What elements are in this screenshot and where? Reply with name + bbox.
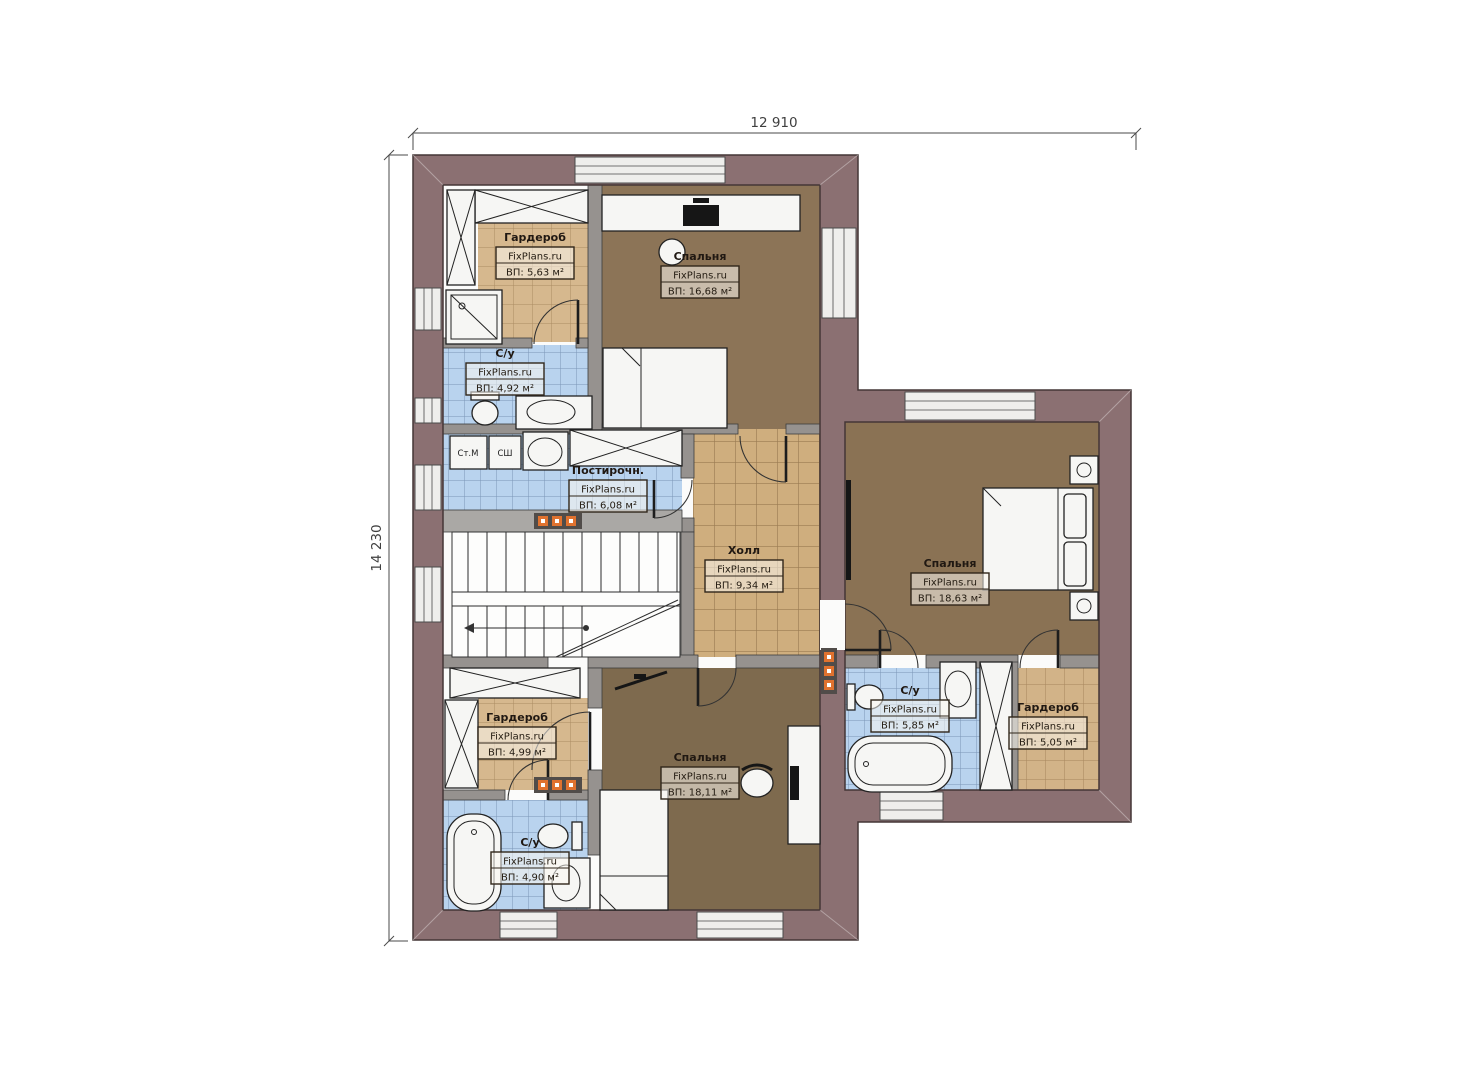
room-label-wardrobe-right: Гардероб FixPlans.ru ВП: 5,05 м² (1009, 701, 1087, 749)
floor-plan-svg: Ст.М СШ (0, 0, 1473, 1080)
window-bottom-1 (500, 912, 557, 938)
room-brand: FixPlans.ru (923, 578, 977, 589)
room-name: С/у (495, 347, 514, 360)
desk (788, 726, 820, 844)
washer-label: Ст.М (458, 449, 479, 459)
floor-plan-page: Ст.М СШ (0, 0, 1473, 1080)
nightstand-bottom (1070, 592, 1098, 620)
bathtub-right (848, 736, 952, 792)
room-area: ВП: 9,34 м² (715, 581, 773, 592)
room-brand: FixPlans.ru (508, 252, 562, 263)
room-brand: FixPlans.ru (490, 732, 544, 743)
laundry-cabinet (570, 430, 682, 466)
bed-top (603, 348, 727, 428)
window-right-main (822, 228, 856, 318)
room-area: ВП: 5,85 м² (881, 721, 939, 732)
dimension-width-label: 12 910 (750, 115, 797, 131)
room-brand: FixPlans.ru (1021, 722, 1075, 733)
hall-wing-door-opening (820, 600, 845, 650)
room-name: С/у (520, 836, 539, 849)
room-label-wardrobe-bottom-left: Гардероб FixPlans.ru ВП: 4,99 м² (478, 711, 556, 759)
room-area: ВП: 18,63 м² (918, 594, 982, 605)
room-name: Холл (728, 544, 760, 557)
room-area: ВП: 4,99 м² (488, 748, 546, 759)
room-name: Постирочн. (572, 464, 644, 477)
tv-wall-right-bedroom (846, 480, 851, 580)
room-name: Гардероб (504, 231, 566, 244)
room-name: Гардероб (1017, 701, 1079, 714)
room-area: ВП: 16,68 м² (668, 287, 732, 298)
window-top (575, 157, 725, 183)
bed-right (983, 488, 1093, 590)
washing-machine: Ст.М (450, 436, 487, 469)
radiator-hall (821, 648, 837, 694)
window-left-2 (415, 398, 441, 423)
nightstand-top (1070, 456, 1098, 484)
window-left-1 (415, 288, 441, 330)
toilet-bottom (538, 822, 582, 850)
room-brand: FixPlans.ru (581, 485, 635, 496)
room-brand: FixPlans.ru (503, 857, 557, 868)
toilet (471, 392, 499, 425)
window-bottom-2 (697, 912, 783, 938)
window-left-3 (415, 465, 441, 510)
drying-cabinet: СШ (489, 436, 521, 469)
radiator-wardrobe-bl (534, 777, 582, 793)
room-label-wardrobe-top-left: Гардероб FixPlans.ru ВП: 5,63 м² (496, 231, 574, 279)
window-wing-top (905, 392, 1035, 420)
room-name: Спальня (674, 751, 727, 764)
room-name: Спальня (674, 250, 727, 263)
hall-floor (693, 429, 820, 657)
room-name: Спальня (924, 557, 977, 570)
room-brand: FixPlans.ru (883, 705, 937, 716)
window-wing-bottom (880, 792, 943, 820)
room-area: ВП: 5,63 м² (506, 268, 564, 279)
laundry-sink (523, 432, 568, 470)
room-area: ВП: 4,90 м² (501, 873, 559, 884)
room-area: ВП: 6,08 м² (579, 501, 637, 512)
room-brand: FixPlans.ru (717, 565, 771, 576)
room-brand: FixPlans.ru (673, 772, 727, 783)
room-brand: FixPlans.ru (673, 271, 727, 282)
radiator-laundry (534, 513, 582, 529)
closet-cabinet-right (980, 662, 1012, 790)
shower (446, 290, 502, 344)
window-left-4 (415, 567, 441, 622)
dimension-height-label: 14 230 (369, 524, 385, 571)
sink-vanity (516, 396, 592, 429)
room-name: С/у (900, 684, 919, 697)
room-area: ВП: 18,11 м² (668, 788, 732, 799)
room-area: ВП: 4,92 м² (476, 384, 534, 395)
dimension-top: 12 910 (408, 115, 1141, 150)
dresser (602, 195, 800, 231)
dryer-label: СШ (497, 449, 512, 459)
bed-bottom (600, 790, 668, 910)
room-area: ВП: 5,05 м² (1019, 738, 1077, 749)
stairs (452, 532, 680, 657)
room-brand: FixPlans.ru (478, 368, 532, 379)
dimension-left: 14 230 (369, 150, 408, 946)
room-label-laundry: Постирочн. FixPlans.ru ВП: 6,08 м² (569, 464, 647, 512)
room-name: Гардероб (486, 711, 548, 724)
